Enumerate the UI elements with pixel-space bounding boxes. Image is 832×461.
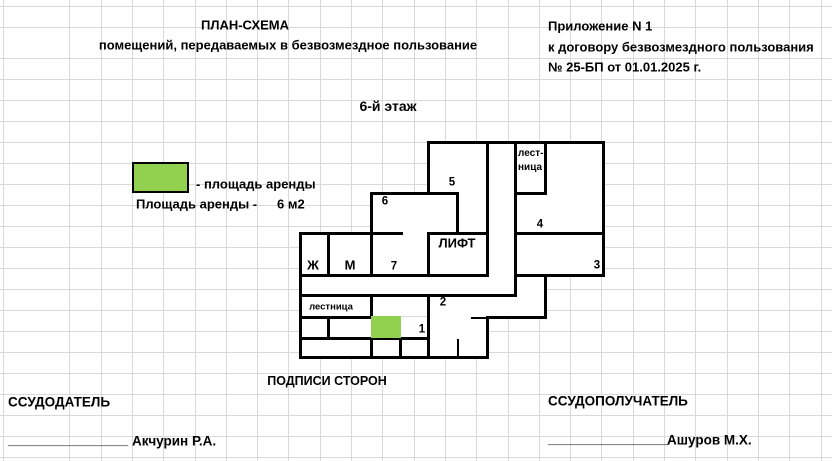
room-label-7: 7 [391,261,397,273]
gridline [195,0,196,461]
wall [299,337,430,340]
wall [370,232,373,277]
wall [427,294,430,359]
floor-title: 6-й этаж [359,99,416,113]
room-label-3: 3 [594,260,600,272]
area-value: 6 м2 [277,198,305,211]
gridline [0,394,832,395]
stairs-label-bottom: лестница [309,302,353,312]
gridline [727,0,728,461]
room-label-2: 2 [440,297,446,309]
gridline [320,0,321,461]
gridline [132,0,133,461]
gridline [821,0,822,461]
wall [486,316,547,319]
highlight-cell [371,316,401,338]
wall [486,141,489,277]
wall [299,316,373,319]
gridline [789,0,790,461]
stairs-top-line1: лест- [518,148,543,159]
gridline [163,0,164,461]
gridline [0,457,832,458]
room-label-1: 1 [419,324,425,336]
wall [486,316,489,360]
gridline [0,79,832,80]
wall [299,232,404,235]
room-label-4: 4 [537,219,543,231]
annex-line-1: Приложение N 1 [548,20,652,33]
borrower-name: Ашуров М.Х. [667,433,752,447]
wall [456,192,459,235]
borrower-label: ССУДОПОЛУЧАТЕЛЬ [548,394,688,408]
annex-line-2: к договору безвозмездного пользования [548,41,814,54]
wall [370,192,373,235]
wall [471,317,487,319]
wall [514,141,517,297]
wall [399,337,402,359]
gridline [3,0,4,461]
gridline [0,163,832,164]
annex-line-3: № 25-БП от 01.01.2025 г. [548,61,701,74]
gridline [401,316,427,317]
signatures-heading: ПОДПИСИ СТОРОН [267,375,387,388]
area-label: Площадь аренды - [136,198,257,211]
gridline [0,6,832,7]
gridline [351,0,352,461]
lender-signature-line: ________________ [8,433,128,447]
wall [514,192,547,195]
page-title: ПЛАН-СХЕМА [201,19,289,32]
gridline [226,0,227,461]
wall [299,294,518,297]
gridline [758,0,759,461]
page-subtitle: помещений, передаваемых в безвозмездное … [99,39,477,52]
lender-name: Акчурин Р.А. [132,434,216,448]
wall [602,141,605,277]
room-label-6: 6 [382,196,388,208]
wall [457,339,459,358]
gridline [0,27,832,28]
wc-women-label: Ж [307,259,319,272]
wall [514,232,605,235]
wall [370,337,373,359]
lift-label: ЛИФТ [438,237,475,250]
wall [514,274,605,277]
wc-men-label: М [345,259,356,272]
gridline [0,373,832,374]
wall [299,356,489,359]
borrower-signature-line: ________________ [548,432,668,446]
wall [327,232,330,277]
stairs-label-top: лест- ница [518,147,543,175]
spreadsheet-page: ПЛАН-СХЕМА помещений, передаваемых в без… [0,0,832,461]
gridline [0,142,832,143]
legend-label: - площадь аренды [196,178,316,191]
gridline [288,0,289,461]
stairs-top-line2: ница [518,162,542,173]
wall [299,232,302,359]
gridline [257,0,258,461]
lender-label: ССУДОДАТЕЛЬ [8,395,110,409]
wall [370,294,373,319]
gridline [101,0,102,461]
wall [427,141,430,195]
gridline [0,184,832,185]
gridline [0,415,832,416]
wall [544,141,547,195]
gridline [69,0,70,461]
gridline [0,121,832,122]
room-label-5: 5 [449,177,455,189]
wall [544,274,547,319]
legend-swatch [132,162,189,193]
wall [427,232,430,277]
wall [327,316,330,341]
gridline [0,58,832,59]
